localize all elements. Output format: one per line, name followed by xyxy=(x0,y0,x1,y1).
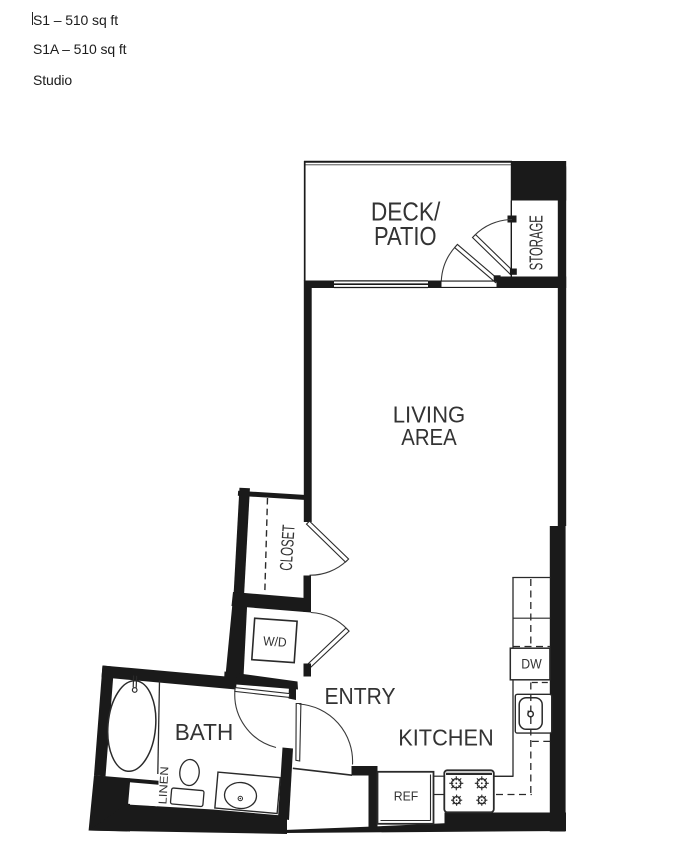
svg-text:REF: REF xyxy=(394,789,419,803)
svg-text:STORAGE: STORAGE xyxy=(527,215,547,270)
svg-text:DW: DW xyxy=(521,657,542,672)
svg-text:AREA: AREA xyxy=(401,424,457,450)
svg-text:LINEN: LINEN xyxy=(157,766,171,805)
svg-text:ENTRY: ENTRY xyxy=(325,683,396,709)
svg-text:PATIO: PATIO xyxy=(374,221,437,251)
svg-text:CLOSET: CLOSET xyxy=(276,524,299,571)
svg-text:KITCHEN: KITCHEN xyxy=(398,725,494,751)
svg-text:W/D: W/D xyxy=(263,633,287,650)
svg-text:BATH: BATH xyxy=(175,719,234,745)
